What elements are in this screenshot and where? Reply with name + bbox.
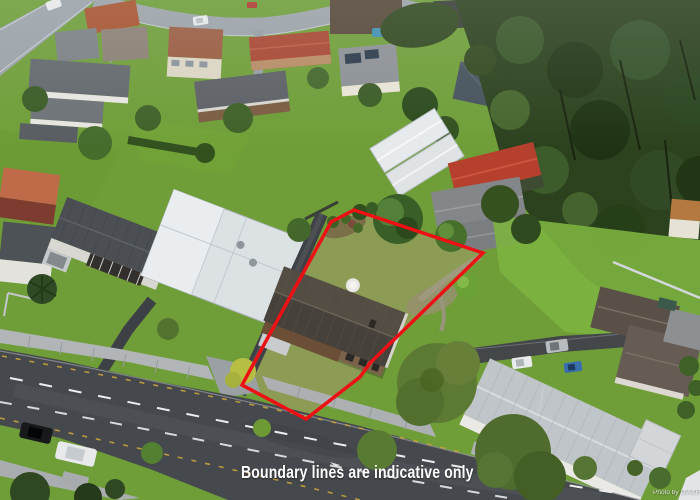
boundary-disclaimer-text: Boundary lines are indicative only [241, 463, 474, 482]
haze-overlay [0, 0, 700, 150]
aerial-photo: Boundary lines are indicative only Photo… [0, 0, 700, 500]
aerial-photo-scene [0, 0, 700, 500]
palm-tree [27, 274, 57, 304]
photo-credit-watermark: Photo by DIAKRIT [653, 490, 700, 497]
